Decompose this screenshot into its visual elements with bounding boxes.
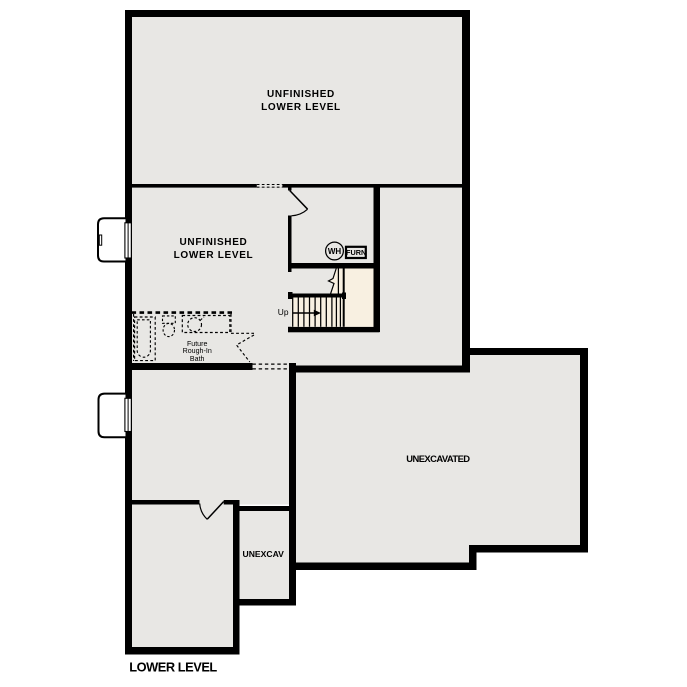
svg-text:FURN: FURN bbox=[346, 248, 366, 257]
svg-text:LOWER LEVEL: LOWER LEVEL bbox=[261, 102, 341, 113]
svg-text:Bath: Bath bbox=[190, 355, 205, 363]
svg-text:UNFINISHED: UNFINISHED bbox=[267, 89, 335, 100]
svg-text:UNEXCAVATED: UNEXCAVATED bbox=[406, 453, 470, 464]
svg-text:WH: WH bbox=[328, 247, 342, 256]
svg-text:LOWER LEVEL: LOWER LEVEL bbox=[129, 659, 217, 674]
svg-text:UNFINISHED: UNFINISHED bbox=[180, 237, 248, 248]
svg-text:LOWER LEVEL: LOWER LEVEL bbox=[174, 250, 254, 261]
svg-text:Up: Up bbox=[278, 307, 289, 317]
svg-text:UNEXCAV: UNEXCAV bbox=[243, 549, 285, 559]
